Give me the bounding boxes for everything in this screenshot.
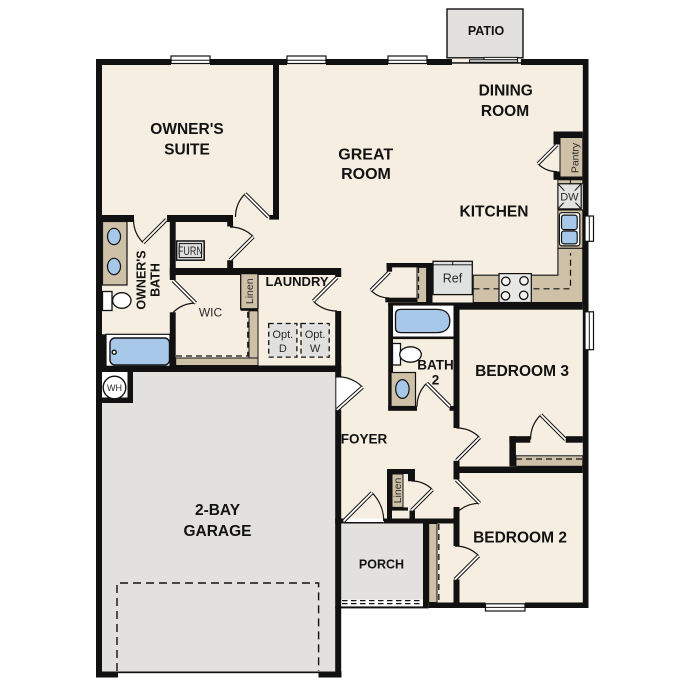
- svg-text:FOYER: FOYER: [341, 432, 388, 447]
- svg-text:BATH: BATH: [148, 263, 162, 297]
- svg-text:PORCH: PORCH: [359, 558, 404, 572]
- svg-text:FURN: FURN: [178, 246, 203, 258]
- svg-text:2: 2: [432, 373, 440, 388]
- svg-text:WIC: WIC: [199, 306, 223, 320]
- svg-text:KITCHEN: KITCHEN: [460, 204, 529, 221]
- svg-text:DINING: DINING: [479, 83, 533, 100]
- svg-text:GARAGE: GARAGE: [183, 523, 251, 540]
- svg-text:Opt.: Opt.: [305, 329, 326, 341]
- svg-text:PATIO: PATIO: [468, 24, 505, 38]
- svg-text:BATH: BATH: [417, 358, 454, 373]
- svg-text:GREAT: GREAT: [338, 147, 393, 164]
- svg-text:OWNER'S: OWNER'S: [134, 250, 148, 309]
- svg-text:Linen: Linen: [392, 478, 404, 504]
- svg-text:Linen: Linen: [244, 278, 256, 304]
- svg-text:SUITE: SUITE: [164, 142, 210, 159]
- svg-text:ROOM: ROOM: [481, 103, 529, 120]
- svg-text:ROOM: ROOM: [341, 166, 391, 183]
- svg-text:BEDROOM 2: BEDROOM 2: [473, 530, 567, 547]
- svg-text:W: W: [310, 343, 321, 355]
- svg-text:2-BAY: 2-BAY: [195, 502, 241, 519]
- svg-text:Opt.: Opt.: [272, 329, 293, 341]
- svg-text:OWNER'S: OWNER'S: [150, 121, 223, 138]
- svg-text:DW: DW: [560, 191, 579, 203]
- svg-text:LAUNDRY: LAUNDRY: [265, 274, 328, 289]
- svg-text:Ref: Ref: [443, 272, 463, 286]
- svg-text:Pantry: Pantry: [569, 142, 581, 173]
- svg-text:BEDROOM 3: BEDROOM 3: [475, 363, 569, 380]
- svg-text:WH: WH: [107, 383, 122, 393]
- svg-text:D: D: [279, 343, 287, 355]
